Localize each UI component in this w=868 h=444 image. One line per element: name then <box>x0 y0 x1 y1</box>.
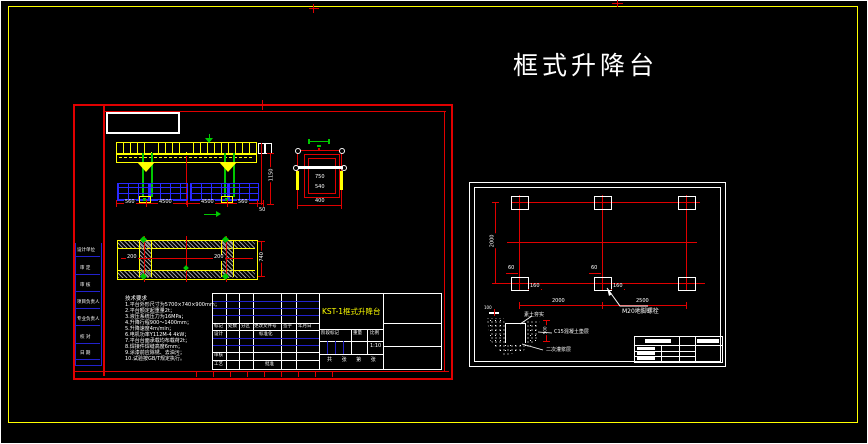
dim-text: 60 <box>507 266 515 272</box>
detail-label: 素土夯实 <box>524 313 544 319</box>
sheet-inner-bottom-line <box>73 371 449 372</box>
tb-header-cell: 年月日 <box>298 324 312 329</box>
drawing-number: KST-1框式升降台 <box>322 308 381 317</box>
anchor-plate <box>678 196 696 210</box>
tb-header-cell: 标记 <box>214 324 223 329</box>
tb-check-label: 审核 <box>214 353 223 358</box>
brace <box>137 162 155 172</box>
dim-text: 50 <box>258 208 266 214</box>
tb-header-cell: 签字 <box>283 324 292 329</box>
signature-label: 项目负责人 <box>77 300 100 305</box>
tb-approve-label: 批准 <box>265 362 274 367</box>
tb-process-label: 工艺 <box>214 362 223 367</box>
tb-header-cell: 处数 <box>228 324 237 329</box>
tb-scale-value: 1:10 <box>370 344 381 350</box>
tb-design-label: 设计 <box>214 332 223 337</box>
tb-header-cell: 分区 <box>241 324 250 329</box>
detail-label: 二次灌浆层 <box>546 348 571 354</box>
tb-weight-label: 重量 <box>353 331 362 336</box>
tb-scale-label: 比例 <box>370 331 379 336</box>
cad-canvas: 框式升降台 设计单位 审 定 审 核 <box>0 0 868 444</box>
note-line: 10.试验按GB/T规定执行。 <box>125 357 185 363</box>
platform-plate <box>298 166 343 169</box>
dim-text: 4500 <box>200 200 215 206</box>
anchor-plate <box>511 196 529 210</box>
signature-label: 日 期 <box>80 351 90 356</box>
sheet-top-tick <box>262 100 263 110</box>
dim-text: 200 <box>126 255 138 261</box>
anchor-bolt-label: M20地脚螺栓 <box>622 309 659 316</box>
signature-label: 专业负责人 <box>77 317 100 322</box>
dim-text: 160 <box>529 284 541 290</box>
blank-label-box <box>106 112 180 134</box>
dim-text: 740 <box>260 251 266 263</box>
text-bar <box>637 352 655 355</box>
dim-text: 2000 <box>490 234 496 249</box>
text-bar <box>697 339 719 343</box>
dim-text: 540 <box>314 185 326 191</box>
hatch-column <box>139 241 152 277</box>
signature-label: 审 核 <box>80 283 90 288</box>
page-title: 框式升降台 <box>513 46 658 82</box>
dim-text: 560 <box>124 200 136 206</box>
text-bar <box>637 357 655 360</box>
tb-stage-label: 阶段标记 <box>321 331 339 336</box>
dim-text: 400 <box>314 199 326 205</box>
signature-label: 校 对 <box>80 335 90 340</box>
dim-text: 560 <box>237 200 249 206</box>
dim-text: 100 <box>483 306 493 311</box>
dim-text: 60 <box>590 266 598 272</box>
dim-text: 200 <box>213 255 225 261</box>
mini-title-block <box>634 336 723 363</box>
sheet-inner-left-line <box>103 104 105 376</box>
tb-standardization-label: 标准化 <box>259 332 273 337</box>
detail-label: C15混凝土垫层 <box>554 330 589 336</box>
dim-text: 1150 <box>269 168 275 183</box>
dim-text: 2000 <box>551 299 566 305</box>
title-block: 标记 处数 分区 更改文件号 签字 年月日 设计 标准化 审核 工艺 批准 KS… <box>212 293 442 370</box>
tb-header-cell: 更改文件号 <box>254 324 277 329</box>
signature-label: 审 定 <box>80 266 90 271</box>
anchor-plate <box>678 277 696 291</box>
dimension-line <box>297 205 342 206</box>
text-bar <box>637 347 655 350</box>
anchor-plate <box>511 277 529 291</box>
dim-text: 750 <box>314 175 326 181</box>
anchor-plate <box>594 196 612 210</box>
dim-text: 4500 <box>158 200 173 206</box>
tb-sheet-info: 共 张 第 张 <box>327 358 380 364</box>
sheet-inner-right-line <box>444 111 445 372</box>
dimension-line <box>121 258 253 259</box>
text-bar <box>645 339 671 343</box>
signature-label: 设计单位 <box>77 248 95 253</box>
brace <box>219 162 237 172</box>
